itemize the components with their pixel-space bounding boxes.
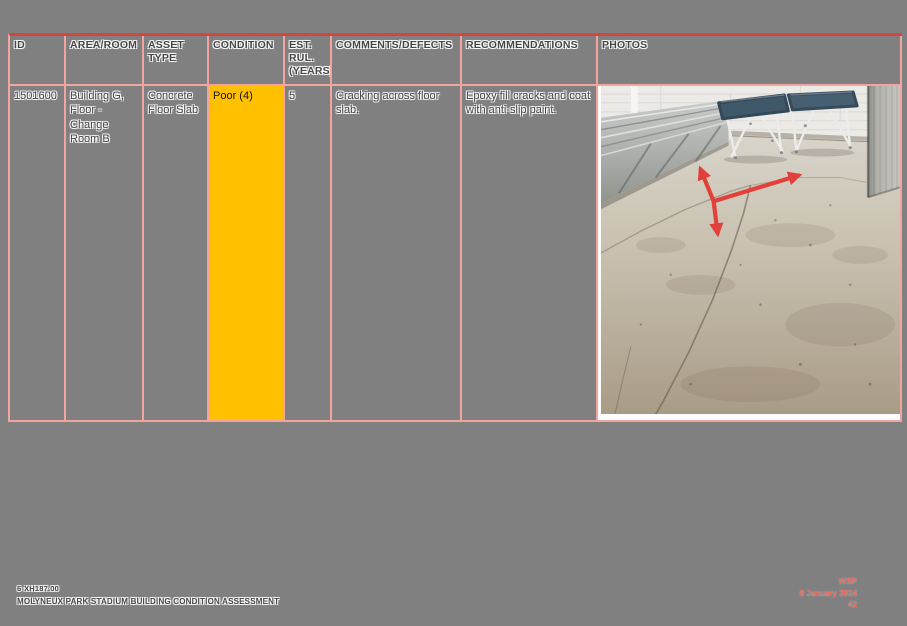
cell-comments-defects: Cracking across floor slab. xyxy=(332,86,462,422)
cell-recommendations: Epoxy fill cracks and coat with anti-sli… xyxy=(462,86,598,422)
project-number: 6-XH187.00 xyxy=(17,584,279,593)
cell-asset-type: Concrete Floor Slab xyxy=(144,86,209,422)
cell-condition-rating: Poor (4) xyxy=(209,86,285,422)
col-header-asset-type: ASSET TYPE xyxy=(144,36,209,86)
col-header-id: ID xyxy=(10,36,66,86)
cell-est-rul-years: 5 xyxy=(285,86,332,422)
condition-badge: Poor (4) xyxy=(213,90,253,102)
cell-asset-id: 1501600 xyxy=(10,86,66,422)
col-header-est-rul: EST. RUL. (YEARS) xyxy=(285,36,332,86)
wall-conduit xyxy=(631,86,638,116)
footer-right: WSP 8 January 2024 42 xyxy=(800,576,857,611)
page-number: 42 xyxy=(800,599,857,611)
col-header-recommendations-label: RECOMMENDATIONS xyxy=(466,39,578,51)
photo-change-room-floor xyxy=(601,86,900,414)
document-title: MOLYNEUX PARK STADIUM BUILDING CONDITION… xyxy=(17,597,279,606)
report-page: { "table": { "columns": [ {"label": "ID"… xyxy=(0,0,907,626)
col-header-recommendations: RECOMMENDATIONS xyxy=(462,36,598,86)
partition-panel xyxy=(868,86,900,197)
cell-photos xyxy=(598,86,902,422)
col-header-area-room-label: AREA/ROOM xyxy=(70,39,137,51)
col-header-photos: PHOTOS xyxy=(598,36,902,86)
col-header-id-label: ID xyxy=(14,39,25,51)
footer-left: 6-XH187.00 MOLYNEUX PARK STADIUM BUILDIN… xyxy=(17,584,279,606)
col-header-area-room: AREA/ROOM xyxy=(66,36,144,86)
col-header-comments: COMMENTS/DEFECTS xyxy=(332,36,462,86)
col-header-condition-label: CONDITION xyxy=(213,39,274,51)
condition-assessment-table: ID AREA/ROOM ASSET TYPE CONDITION EST. R… xyxy=(8,33,902,422)
col-header-condition: CONDITION xyxy=(209,36,285,86)
col-header-asset-type-label: ASSET TYPE xyxy=(148,39,184,64)
col-header-est-rul-label: EST. RUL. (YEARS) xyxy=(289,39,332,77)
report-date: 8 January 2024 xyxy=(800,588,857,600)
cell-area-room: Building G, Floor - Change Room B xyxy=(66,86,144,422)
col-header-photos-label: PHOTOS xyxy=(602,39,647,51)
company-name: WSP xyxy=(800,576,857,588)
col-header-comments-label: COMMENTS/DEFECTS xyxy=(336,39,452,51)
